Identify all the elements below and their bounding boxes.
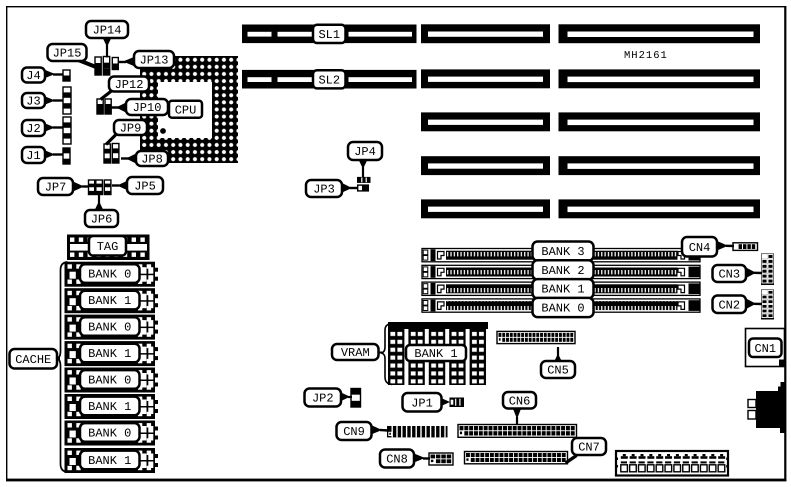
svg-text:JP13: JP13 [140, 54, 169, 68]
svg-text:CN7: CN7 [578, 441, 600, 455]
svg-text:BANK 2: BANK 2 [541, 264, 584, 278]
svg-text:JP12: JP12 [115, 78, 144, 92]
svg-text:JP6: JP6 [91, 213, 113, 227]
svg-text:J1: J1 [26, 149, 40, 163]
svg-text:J4: J4 [26, 69, 40, 83]
svg-text:JP14: JP14 [93, 24, 122, 38]
svg-text:BANK 0: BANK 0 [88, 426, 131, 440]
svg-text:CN5: CN5 [547, 364, 569, 378]
svg-text:CN2: CN2 [718, 298, 740, 312]
svg-text:MH2161: MH2161 [624, 50, 668, 62]
svg-text:JP1: JP1 [411, 396, 433, 410]
svg-text:JP7: JP7 [45, 181, 67, 195]
svg-text:VRAM: VRAM [341, 346, 370, 360]
svg-text:CPU: CPU [175, 103, 197, 117]
svg-text:JP5: JP5 [134, 180, 156, 194]
svg-text:CN9: CN9 [343, 425, 365, 439]
svg-text:SL2: SL2 [318, 73, 340, 87]
svg-text:BANK 1: BANK 1 [414, 347, 457, 361]
svg-text:J2: J2 [26, 122, 40, 136]
svg-text:BANK 0: BANK 0 [88, 321, 131, 335]
svg-text:JP10: JP10 [133, 101, 162, 115]
svg-text:BANK 1: BANK 1 [88, 347, 131, 361]
svg-text:BANK 0: BANK 0 [88, 373, 131, 387]
svg-text:BANK 3: BANK 3 [541, 245, 584, 259]
svg-text:CN3: CN3 [718, 268, 740, 282]
svg-text:BANK 1: BANK 1 [541, 283, 584, 297]
svg-text:CN1: CN1 [754, 342, 776, 356]
svg-text:CN8: CN8 [386, 453, 408, 467]
svg-text:TAG: TAG [97, 240, 119, 254]
svg-text:JP2: JP2 [312, 392, 334, 406]
svg-text:JP3: JP3 [313, 183, 335, 197]
svg-text:BANK 0: BANK 0 [88, 268, 131, 282]
svg-text:JP9: JP9 [120, 122, 142, 136]
svg-text:CN4: CN4 [689, 241, 711, 255]
svg-text:CN6: CN6 [509, 394, 531, 408]
svg-text:J3: J3 [26, 95, 40, 109]
svg-text:JP4: JP4 [354, 145, 376, 159]
svg-text:SL1: SL1 [318, 28, 340, 42]
svg-text:BANK 0: BANK 0 [541, 302, 584, 316]
svg-text:BANK 1: BANK 1 [88, 400, 131, 414]
svg-text:BANK 1: BANK 1 [88, 454, 131, 468]
svg-text:BANK 1: BANK 1 [88, 294, 131, 308]
svg-text:CACHE: CACHE [15, 353, 51, 367]
svg-text:JP8: JP8 [141, 153, 163, 167]
svg-text:JP15: JP15 [53, 47, 82, 61]
